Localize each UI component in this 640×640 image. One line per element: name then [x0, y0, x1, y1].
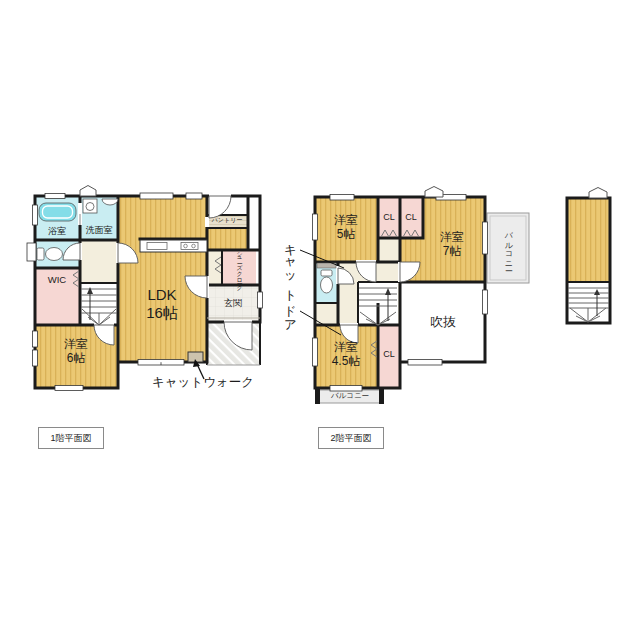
- f2-hall-upper: [378, 238, 400, 262]
- f2-void: [400, 282, 485, 362]
- f2-balcony-bottom: [318, 390, 382, 403]
- toilet-icon: [321, 270, 332, 276]
- floor1-title: 1階平面図: [38, 427, 104, 449]
- toilet-icon: [37, 248, 44, 260]
- toilet-icon: [46, 248, 63, 261]
- gable-mark-icon: [425, 187, 443, 198]
- f2-closet-right: [400, 197, 423, 238]
- f1-entry-hall: [207, 250, 222, 285]
- kitchen-sink-icon: [147, 243, 167, 250]
- f2-balcony-stub-right: [379, 389, 384, 404]
- f2-closet-left: [378, 197, 400, 238]
- floor2-title: 2階平面図: [318, 427, 384, 449]
- f1-kitchen-passage: [207, 228, 248, 250]
- f2-room-bedroom5: [315, 197, 378, 262]
- strip-room: [567, 198, 610, 282]
- toilet-icon: [321, 277, 333, 293]
- floor2-title-text: 2階平面図: [330, 432, 371, 445]
- f2-room-bedroom7: [423, 197, 485, 282]
- f1-room-wic: [35, 268, 80, 325]
- f2-closet-bottom: [378, 325, 400, 388]
- floor1-title-text: 1階平面図: [50, 432, 91, 445]
- f1-room-shoes-closet: [222, 250, 256, 285]
- floorplan-page: 浴室 洗面室 WIC LDK 16帖 玄関 シューズクローク パントリー 洋室 …: [0, 0, 640, 640]
- floor-plan-svg: [0, 0, 640, 640]
- f2-balcony-stub-left: [315, 389, 320, 404]
- gable-mark-icon: [589, 188, 607, 199]
- f1-room-genkan: [207, 285, 260, 322]
- attic-strip: [567, 198, 610, 323]
- gable-mark-icon: [80, 186, 96, 197]
- f2-balcony-right: [487, 213, 529, 283]
